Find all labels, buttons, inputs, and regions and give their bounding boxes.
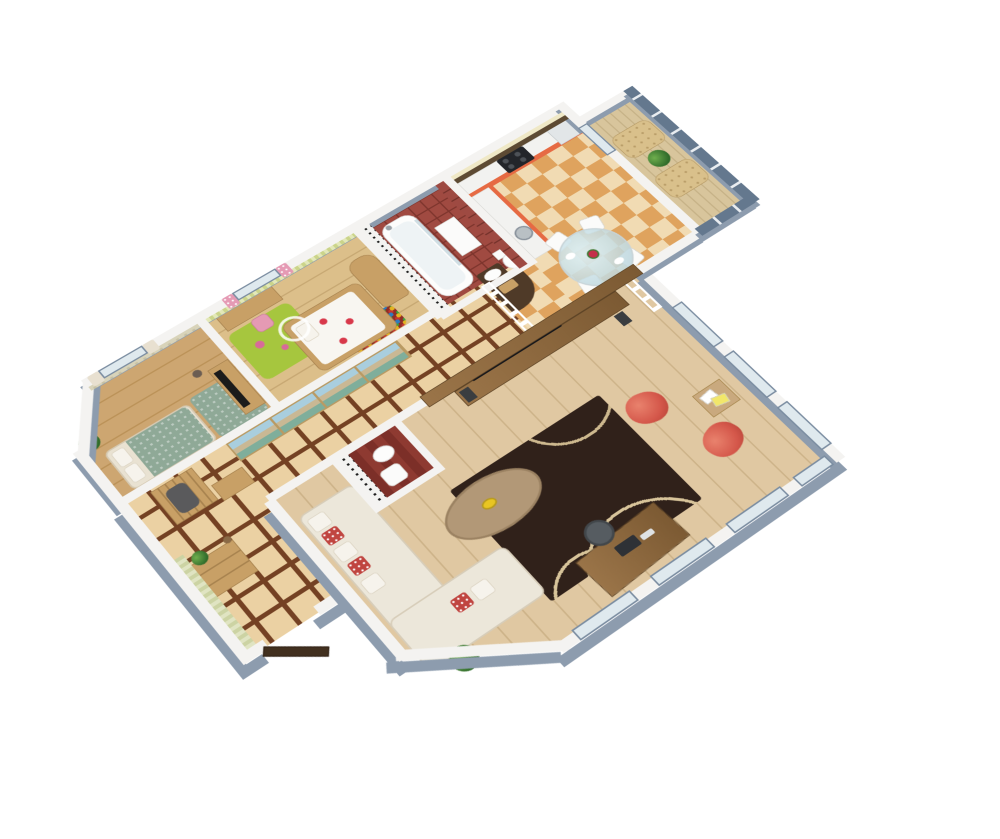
entry-door-open <box>263 647 329 657</box>
render-canvas <box>0 0 1000 839</box>
apartment-plan <box>20 63 976 819</box>
